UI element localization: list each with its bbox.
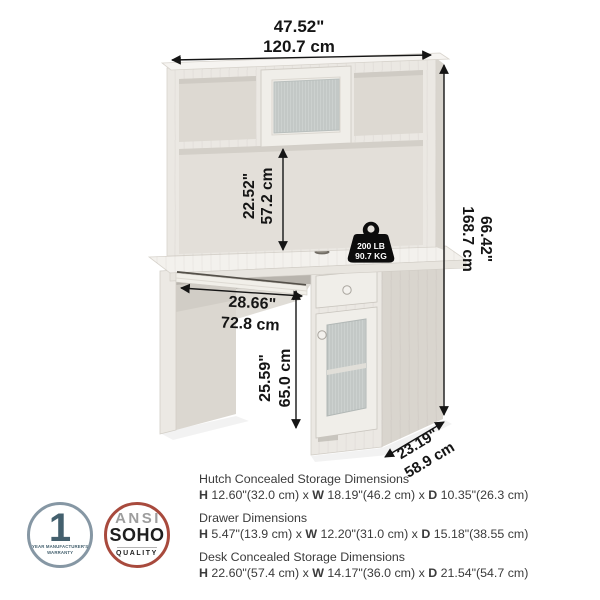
desk [149,246,466,462]
cabinet-door-knob [318,331,326,339]
height-label-cm: 168.7 cm [459,206,476,272]
knee-space-label-in: 25.59" [257,354,274,402]
height-label-in: 66.42" [477,216,494,262]
hutch [162,53,449,256]
quality-label: QUALITY [116,550,158,558]
hutch-opening-label-in: 22.52" [241,173,258,219]
hutch-left-cubby [179,76,256,142]
weight-capacity-kg: 90.7 KG [355,251,387,261]
warranty-badge: 1 YEAR MANUFACTURER'S WARRANTY [27,502,93,568]
soho-label: SOHO [109,526,164,544]
hutch-glass-door [261,66,351,147]
tray-label-in: 28.66" [228,294,276,313]
badge-divider [117,547,157,548]
product-dimension-diagram: 200 LB 90.7 KG 47.52" 120.7 cm 22.52" 57… [0,0,600,600]
drawer-knob [343,286,351,294]
cabinet-door [316,307,377,438]
drawer [316,270,377,308]
hutch-opening-label-cm: 57.2 cm [259,168,276,225]
hutch-door-glass [274,79,339,133]
pedestal-side-grain [382,252,445,447]
certification-badges: 1 YEAR MANUFACTURER'S WARRANTY ANSI SOHO… [27,502,170,568]
spec-group: Desk Concealed Storage DimensionsH 22.60… [199,549,579,581]
weight-handle-hole [367,225,374,232]
spec-group: Drawer DimensionsH 5.47"(13.9 cm) x W 12… [199,510,579,542]
width-label-cm: 120.7 cm [263,37,335,56]
hutch-right-cubby [354,70,423,136]
warranty-text-line1: YEAR MANUFACTURER'S [32,545,88,549]
spec-title: Desk Concealed Storage Dimensions [199,549,579,565]
spec-values: H 22.60"(57.4 cm) x W 14.17"(36.0 cm) x … [199,565,579,581]
weight-capacity-lb: 200 LB [357,241,385,251]
spec-values: H 5.47"(13.9 cm) x W 12.20"(31.0 cm) x D… [199,526,579,542]
spec-title: Drawer Dimensions [199,510,579,526]
ansi-label: ANSI [115,512,161,526]
desk-left-panel-front-edge [160,270,176,434]
warranty-text-line2: WARRANTY [47,551,73,555]
spec-title: Hutch Concealed Storage Dimensions [199,471,579,487]
storage-specs: Hutch Concealed Storage DimensionsH 12.6… [199,471,579,581]
warranty-years: 1 [49,511,71,545]
spec-values: H 12.60"(32.0 cm) x W 18.19"(46.2 cm) x … [199,487,579,503]
knee-space-label-cm: 65.0 cm [277,349,294,408]
tray-label-cm: 72.8 cm [220,314,280,334]
ansi-soho-badge: ANSI SOHO QUALITY [104,502,170,568]
hutch-side-panel [436,58,444,250]
spec-group: Hutch Concealed Storage DimensionsH 12.6… [199,471,579,503]
width-label-in: 47.52" [274,17,325,36]
